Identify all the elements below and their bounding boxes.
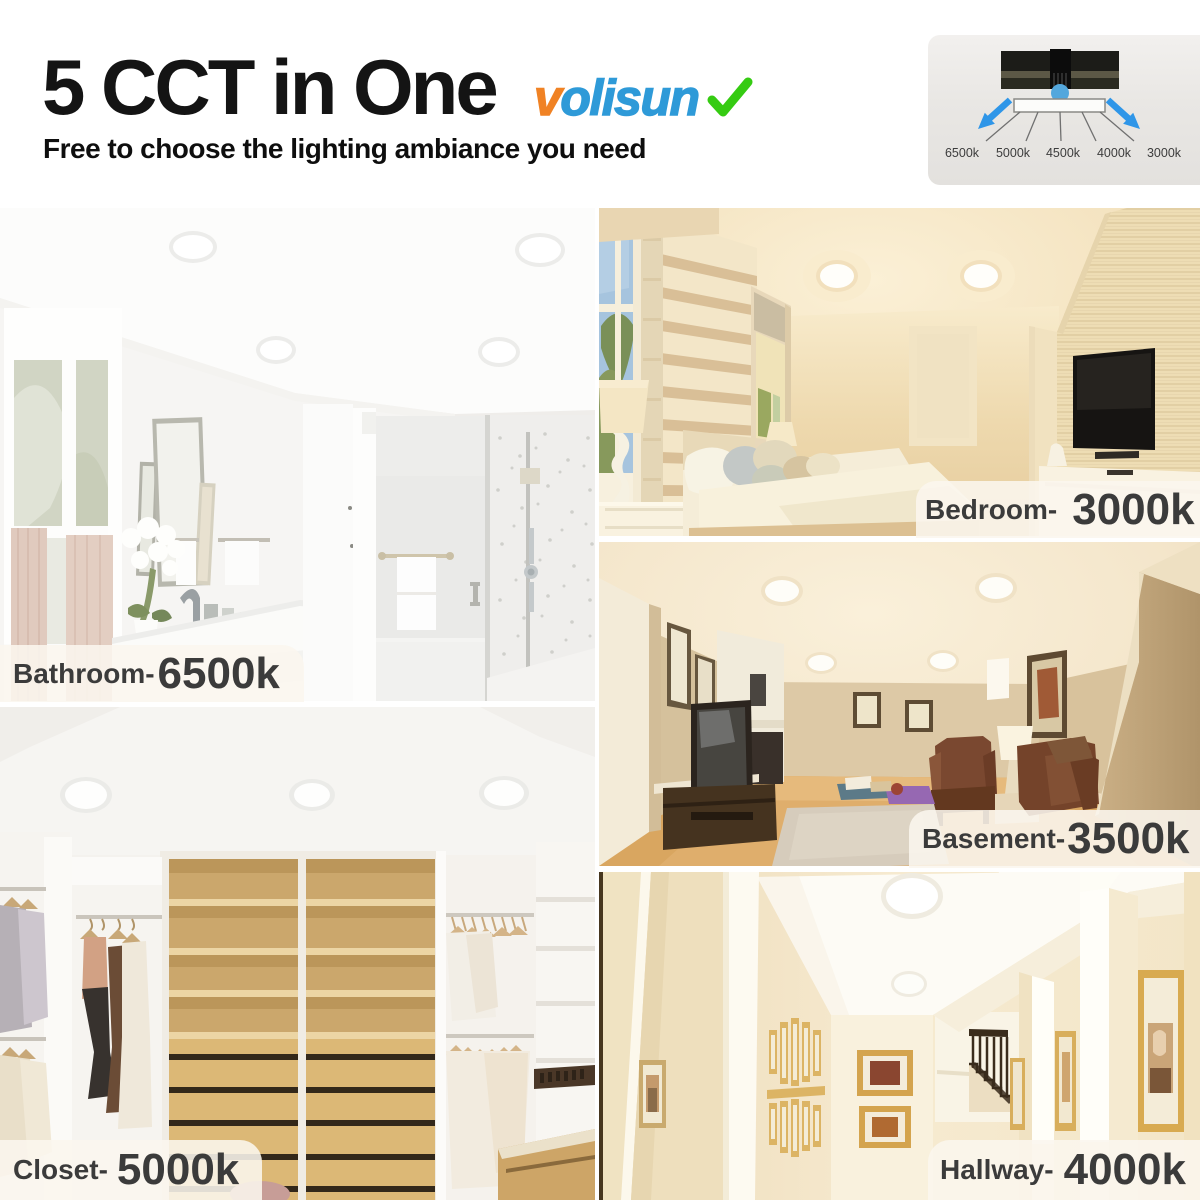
svg-text:6500k: 6500k (945, 146, 980, 160)
svg-text:5000k: 5000k (996, 146, 1031, 160)
svg-text:4000k: 4000k (1097, 146, 1132, 160)
svg-text:4500k: 4500k (1046, 146, 1081, 160)
svg-text:3000k: 3000k (1147, 146, 1182, 160)
